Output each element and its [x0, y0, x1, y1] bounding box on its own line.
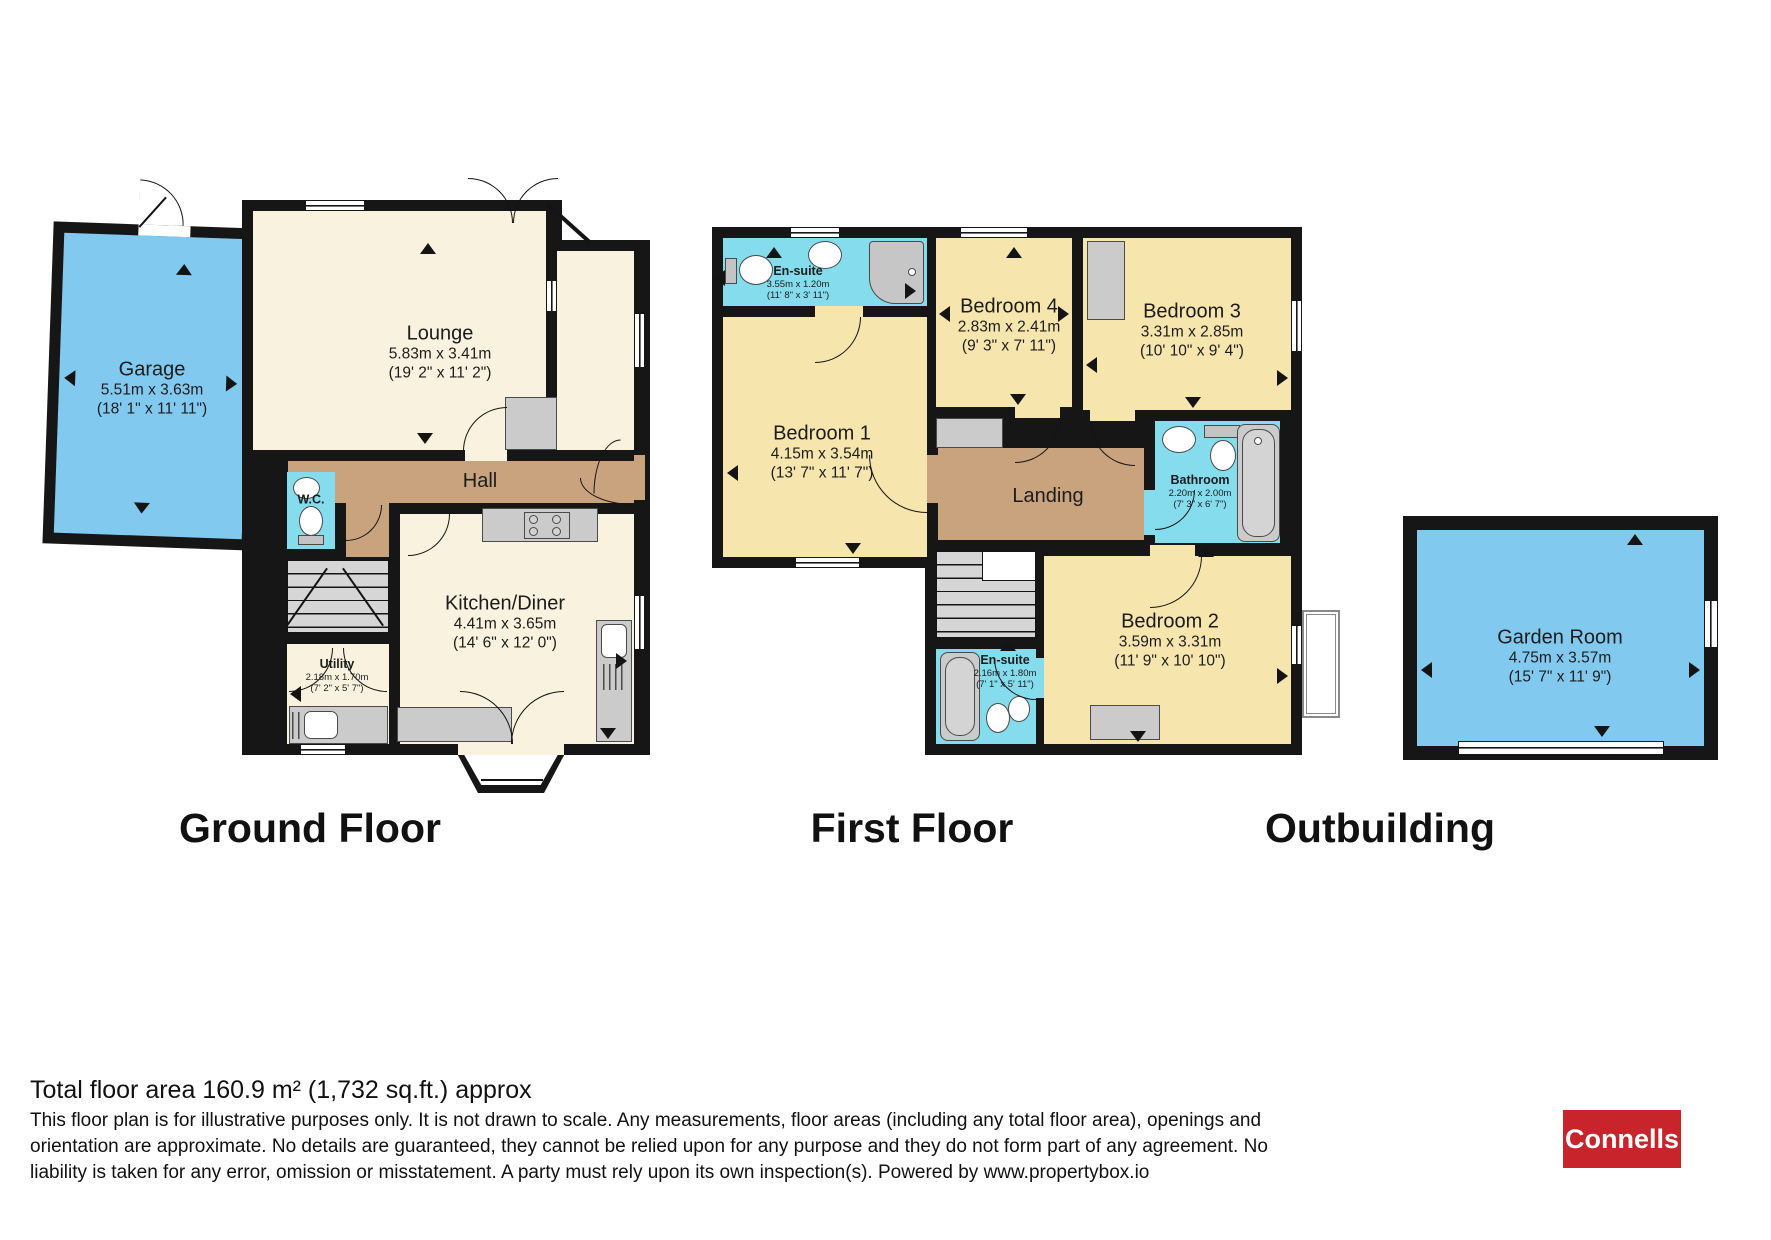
ground-floor-title: Ground Floor	[179, 805, 441, 852]
window	[1704, 600, 1718, 648]
disclaimer-line-3: liability is taken for any error, omissi…	[30, 1162, 1149, 1184]
measure-arrow-icon	[1689, 662, 1700, 678]
disclaimer-line-2: orientation are approximate. No details …	[30, 1136, 1268, 1158]
measure-arrow-icon	[1594, 726, 1610, 737]
measure-arrow-icon	[1421, 662, 1432, 678]
disclaimer-line-1: This floor plan is for illustrative purp…	[30, 1110, 1261, 1132]
connells-logo: Connells	[1563, 1110, 1681, 1168]
measure-arrow-icon	[1627, 534, 1643, 545]
first-floor-title: First Floor	[811, 805, 1014, 852]
sliding-door-glazing	[1458, 741, 1664, 755]
total-floor-area: Total floor area 160.9 m² (1,732 sq.ft.)…	[30, 1076, 532, 1105]
floorplan-canvas: Garage5.51m x 3.63m(18' 1" x 11' 11") Lo…	[0, 0, 1771, 1240]
outbuilding-title: Outbuilding	[1265, 805, 1495, 852]
outbuilding-plan: Garden Room4.75m x 3.57m(15' 7" x 11' 9"…	[0, 0, 1771, 1240]
room-label-gardenroom: Garden Room4.75m x 3.57m(15' 7" x 11' 9"…	[1497, 625, 1623, 686]
